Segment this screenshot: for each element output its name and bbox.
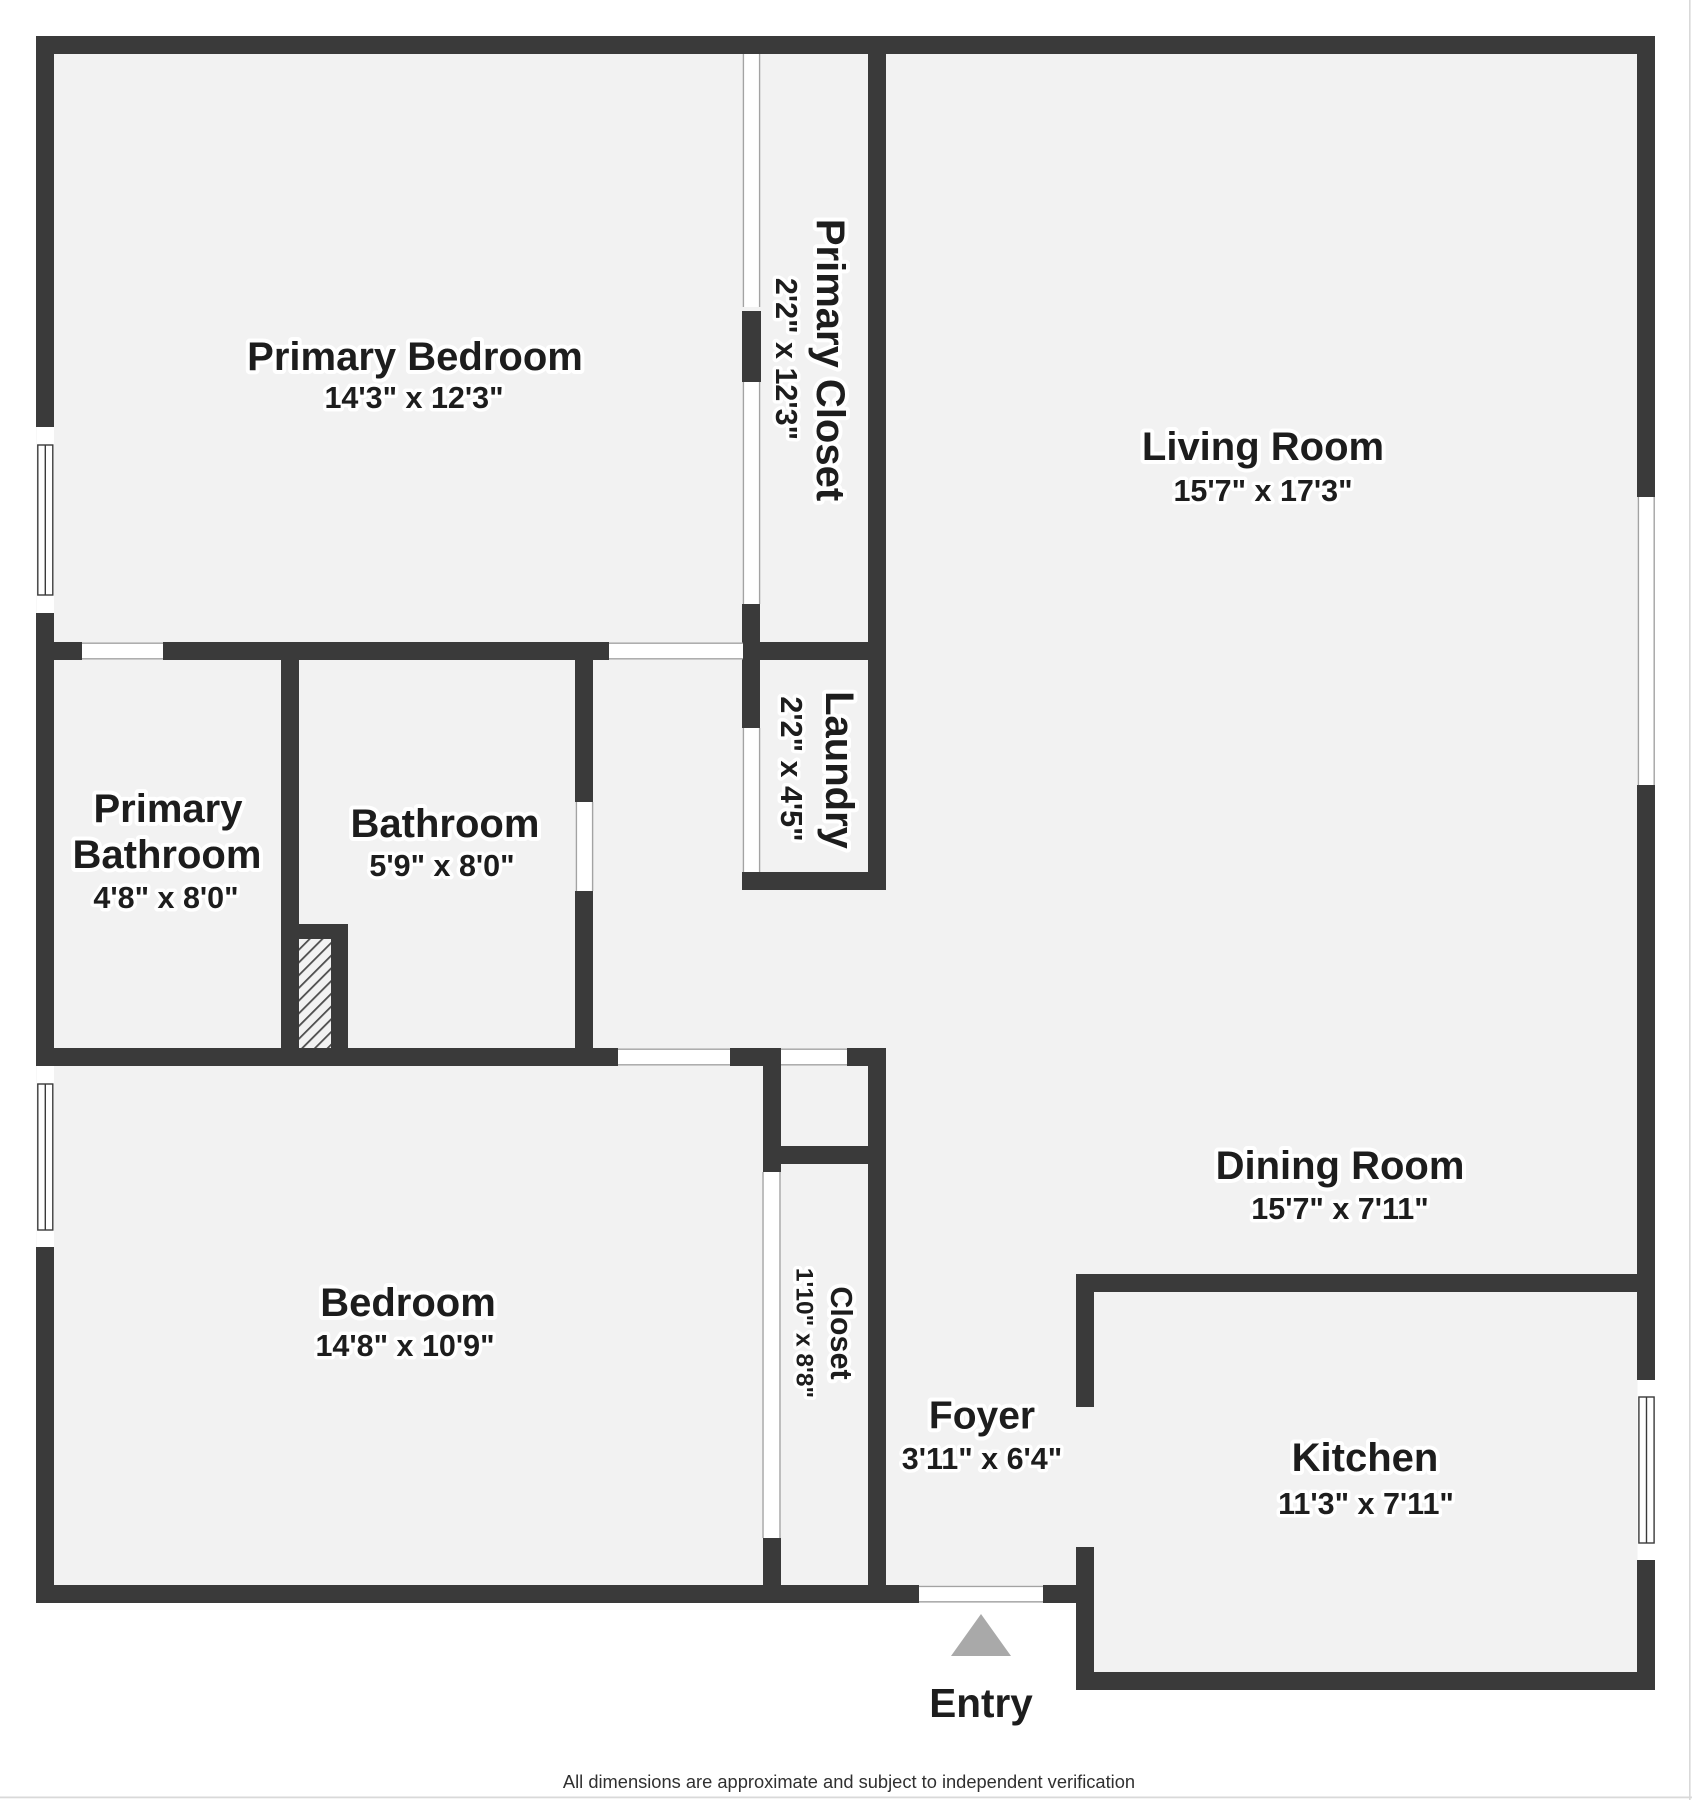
svg-text:Living Room: Living Room <box>1142 425 1384 469</box>
svg-text:Bathroom: Bathroom <box>351 802 540 846</box>
svg-text:Closet: Closet <box>824 1286 858 1379</box>
svg-text:Bathroom: Bathroom <box>73 833 262 877</box>
svg-text:Bedroom: Bedroom <box>320 1281 496 1325</box>
svg-text:Primary Closet: Primary Closet <box>808 219 852 501</box>
svg-text:Laundry: Laundry <box>817 691 861 850</box>
svg-text:1'10" x 8'8": 1'10" x 8'8" <box>791 1268 818 1398</box>
svg-text:15'7" x 7'11": 15'7" x 7'11" <box>1251 1192 1428 1226</box>
svg-text:Entry: Entry <box>929 1680 1033 1726</box>
svg-text:15'7" x 17'3": 15'7" x 17'3" <box>1173 474 1352 508</box>
svg-text:Primary: Primary <box>94 787 244 831</box>
svg-text:3'11" x 6'4": 3'11" x 6'4" <box>902 1442 1062 1476</box>
svg-text:All dimensions are approximate: All dimensions are approximate and subje… <box>563 1771 1135 1792</box>
svg-text:5'9" x 8'0": 5'9" x 8'0" <box>369 849 514 883</box>
svg-text:Dining Room: Dining Room <box>1216 1144 1465 1188</box>
svg-text:14'3" x 12'3": 14'3" x 12'3" <box>324 381 503 415</box>
svg-text:Primary Bedroom: Primary Bedroom <box>247 335 583 379</box>
svg-text:2'2" x 12'3": 2'2" x 12'3" <box>769 278 803 440</box>
svg-text:11'3" x 7'11": 11'3" x 7'11" <box>1278 1487 1454 1521</box>
svg-text:14'8" x 10'9": 14'8" x 10'9" <box>315 1329 494 1363</box>
svg-text:Foyer: Foyer <box>929 1395 1035 1438</box>
svg-text:2'2" x 4'5": 2'2" x 4'5" <box>774 696 808 841</box>
svg-text:4'8" x 8'0": 4'8" x 8'0" <box>93 881 238 915</box>
svg-text:Kitchen: Kitchen <box>1292 1436 1439 1480</box>
